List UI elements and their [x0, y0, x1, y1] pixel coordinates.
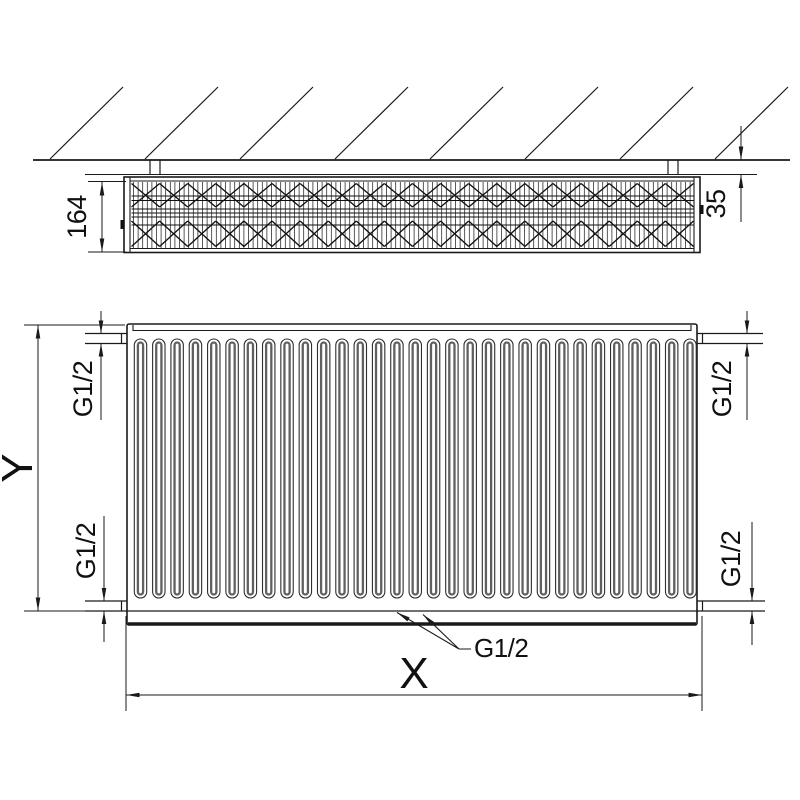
dim-conn-bl-arrow-down [102, 588, 107, 601]
groove-inner [596, 343, 601, 595]
hatch-line [145, 87, 218, 159]
dim-depth: 164 [62, 182, 126, 253]
groove-inner [578, 343, 583, 595]
lattice-upper-cell [637, 184, 665, 208]
lattice-upper-cell [413, 184, 441, 208]
lattice-upper-cell [609, 184, 637, 208]
wall-hatch-lines [50, 87, 788, 159]
dim-connection-top-right: G1/2 [707, 311, 749, 420]
drawing-page: 164 35 G1/2 [0, 0, 800, 800]
dim-conn-bl-label: G1/2 [71, 523, 101, 580]
connection-stub-top-right [697, 334, 763, 344]
groove-inner [669, 343, 674, 595]
lattice-upper-cell [300, 184, 328, 208]
convector-fin-lattice [132, 184, 694, 247]
dim-conn-tr-arrow-up [745, 344, 750, 357]
radiator-technical-drawing: 164 35 G1/2 [0, 0, 800, 800]
dim-conn-tl-arrow-down [99, 321, 104, 334]
top-view-radiator [121, 177, 704, 253]
dim-depth-lines [88, 182, 126, 253]
groove-inner [541, 343, 546, 595]
groove-inner [394, 343, 399, 595]
front-view-radiator [127, 324, 697, 625]
groove-inner [358, 343, 363, 595]
groove-inner [156, 343, 161, 595]
dim-depth-label: 164 [62, 195, 92, 239]
dim-wall-gap-arrow-down [739, 147, 744, 161]
dim-connection-bottom-left: G1/2 [71, 516, 106, 642]
groove-inner [523, 343, 528, 595]
dim-width-arrow-right [689, 693, 703, 698]
bottom-center-connection-label: G1/2 [474, 633, 528, 663]
radiator-section-inner-lines [130, 177, 694, 253]
dim-conn-tl-label: G1/2 [68, 361, 98, 418]
hatch-line [525, 87, 598, 159]
lattice-upper-cell [581, 184, 609, 208]
dim-connection-top-left: G1/2 [68, 311, 103, 420]
groove-inner [229, 343, 234, 595]
connection-stub-bottom-right [697, 601, 765, 611]
water-panel-lines [132, 196, 694, 225]
dim-wall-gap-label: 35 [701, 189, 731, 218]
lattice-upper-cell [132, 184, 160, 208]
lattice-upper-cell [328, 184, 356, 208]
groove-inner [376, 343, 381, 595]
groove-inner [193, 343, 198, 595]
dim-connection-bottom-right: G1/2 [716, 522, 754, 645]
dim-depth-arrow-down [100, 239, 105, 253]
groove-inner [413, 343, 418, 595]
dim-conn-br-arrow-down [750, 588, 755, 601]
hatch-line [240, 87, 313, 159]
groove-inner [321, 343, 326, 595]
hatch-line [620, 87, 693, 159]
groove-inner [431, 343, 436, 595]
connection-stub-top-left [85, 334, 127, 344]
dim-width: X [126, 616, 702, 711]
mounting-brackets [150, 160, 678, 175]
dim-width-arrow-left [126, 693, 140, 698]
groove-inner [211, 343, 216, 595]
dim-conn-tl-arrow-up [99, 344, 104, 357]
groove-inner [632, 343, 637, 595]
groove-inner [559, 343, 564, 595]
groove-inner [339, 343, 344, 595]
hatch-line [715, 87, 788, 159]
groove-inner [248, 343, 253, 595]
groove-inner [303, 343, 308, 595]
lattice-upper-cell [553, 184, 581, 208]
dim-height: Y [0, 325, 125, 611]
dim-height-arrow-up [36, 325, 41, 339]
dim-depth-arrow-up [100, 182, 105, 196]
dim-conn-br-label: G1/2 [716, 531, 746, 588]
groove-inner [651, 343, 656, 595]
front-panel-grooves [134, 339, 696, 598]
hatch-line [50, 87, 123, 159]
groove-inner [284, 343, 289, 595]
leader-arrow-left [397, 613, 410, 622]
dim-wall-gap-arrow-up [739, 175, 744, 189]
groove-inner [504, 343, 509, 595]
front-view: G1/2 G1/2 G1/2 G1/2 Y [0, 311, 765, 711]
lattice-upper-cell [160, 184, 188, 208]
front-top-inner-line [133, 325, 691, 331]
dim-height-label: Y [0, 453, 42, 482]
groove-inner [175, 343, 180, 595]
connection-stub-bottom-left [85, 601, 127, 611]
dim-width-label: X [399, 649, 428, 698]
lattice-upper-cell [384, 184, 412, 208]
hatch-line [430, 87, 503, 159]
convector-fin-verticals [134, 182, 691, 248]
lattice-upper-cell [665, 184, 693, 208]
groove-inner [468, 343, 473, 595]
groove-inner [138, 343, 143, 595]
left-bracket-clip [121, 220, 125, 229]
groove-inner [266, 343, 271, 595]
dim-conn-br-arrow-up [750, 611, 755, 624]
groove-inner [614, 343, 619, 595]
top-view: 164 35 [33, 87, 790, 253]
groove-inner [486, 343, 491, 595]
dim-conn-tr-label: G1/2 [707, 361, 737, 418]
groove-inner [449, 343, 454, 595]
dim-conn-bl-arrow-up [102, 611, 107, 624]
lattice-upper-cell [356, 184, 384, 208]
dim-height-arrow-down [36, 598, 41, 612]
hatch-line [335, 87, 408, 159]
groove-inner [687, 343, 692, 595]
dim-conn-tr-arrow-down [745, 321, 750, 334]
